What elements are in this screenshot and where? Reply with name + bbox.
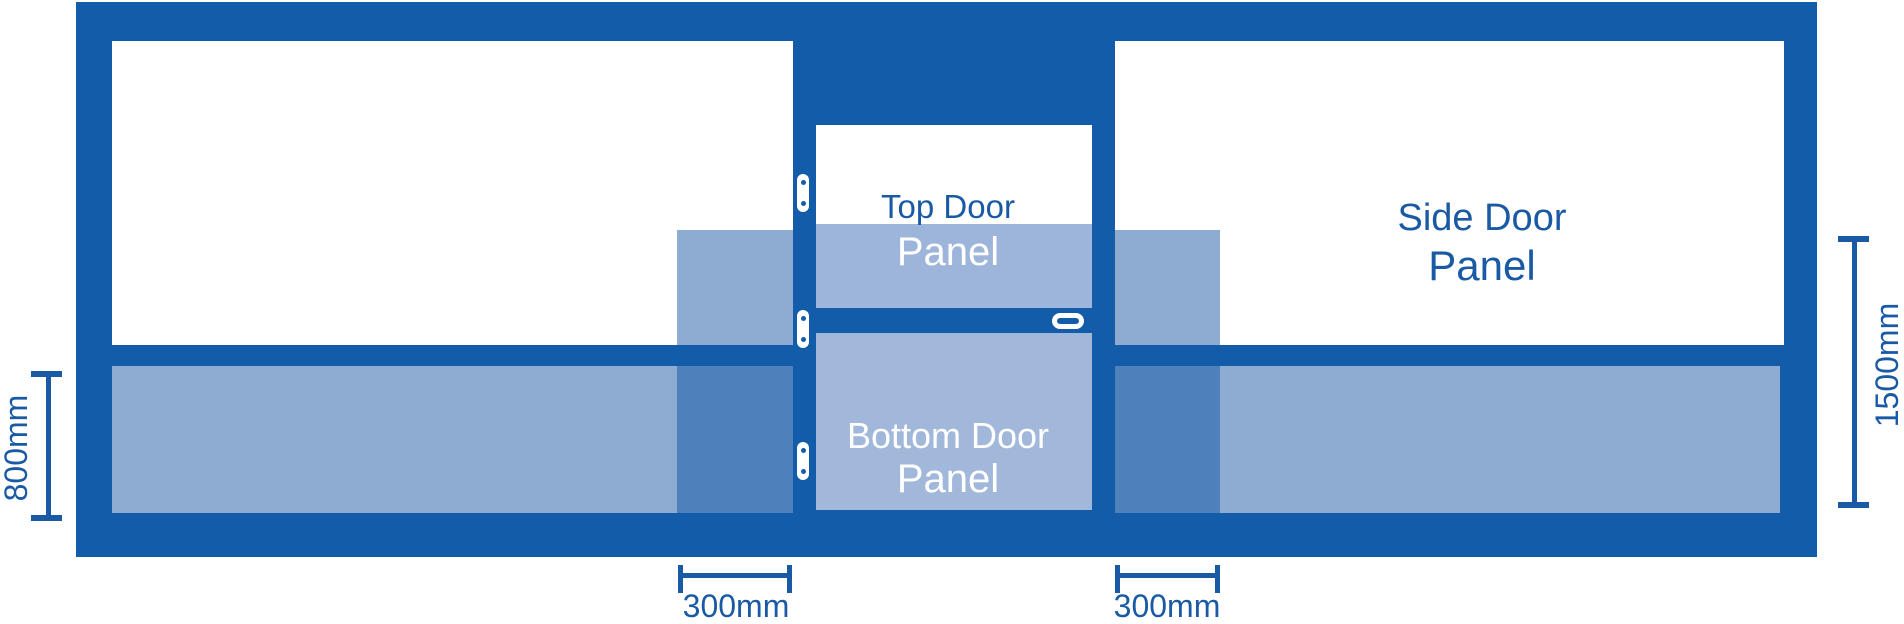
bottom-door-label-line1: Bottom Door: [798, 415, 1098, 457]
dimension-1500mm-line: [1852, 239, 1857, 505]
dimension-300mm-left-line: [678, 573, 792, 578]
dimension-800mm-cap-top: [31, 371, 62, 377]
hinge-pin-icon: [801, 316, 806, 321]
bottom-door-label-line2: Panel: [798, 459, 1098, 499]
dimension-300mm-right-line: [1115, 573, 1220, 578]
dimension-800mm-line: [46, 373, 51, 521]
diagram-canvas: { "diagram": { "labels": { "top_door": {…: [0, 0, 1904, 618]
hinge-pin-icon: [801, 180, 806, 185]
side-door-label-line1: Side Door: [1332, 197, 1632, 239]
top-door-label-line1: Top Door: [798, 186, 1098, 228]
overlay-band-upper-left: [677, 230, 793, 345]
overlay-band-upper-right: [1115, 230, 1220, 345]
overlay-overlap-left: [677, 366, 793, 513]
dimension-1500mm-label: 1500mm: [1869, 275, 1904, 455]
side-door-label-line2: Panel: [1332, 246, 1632, 286]
hinge-middle-icon: [797, 310, 809, 348]
dimension-300mm-right-label: 300mm: [1087, 588, 1247, 624]
dimension-800mm-cap-bottom: [31, 515, 62, 521]
hinge-pin-icon: [801, 337, 806, 342]
dimension-1500mm-cap-top: [1838, 236, 1869, 242]
top-door-label-line2: Panel: [798, 232, 1098, 272]
overlay-overlap-right: [1115, 366, 1220, 513]
dimension-800mm-label: 800mm: [0, 368, 34, 528]
latch-handle-icon: [1052, 313, 1084, 329]
dimension-1500mm-cap-bottom: [1838, 502, 1869, 508]
dimension-300mm-left-label: 300mm: [656, 588, 816, 624]
